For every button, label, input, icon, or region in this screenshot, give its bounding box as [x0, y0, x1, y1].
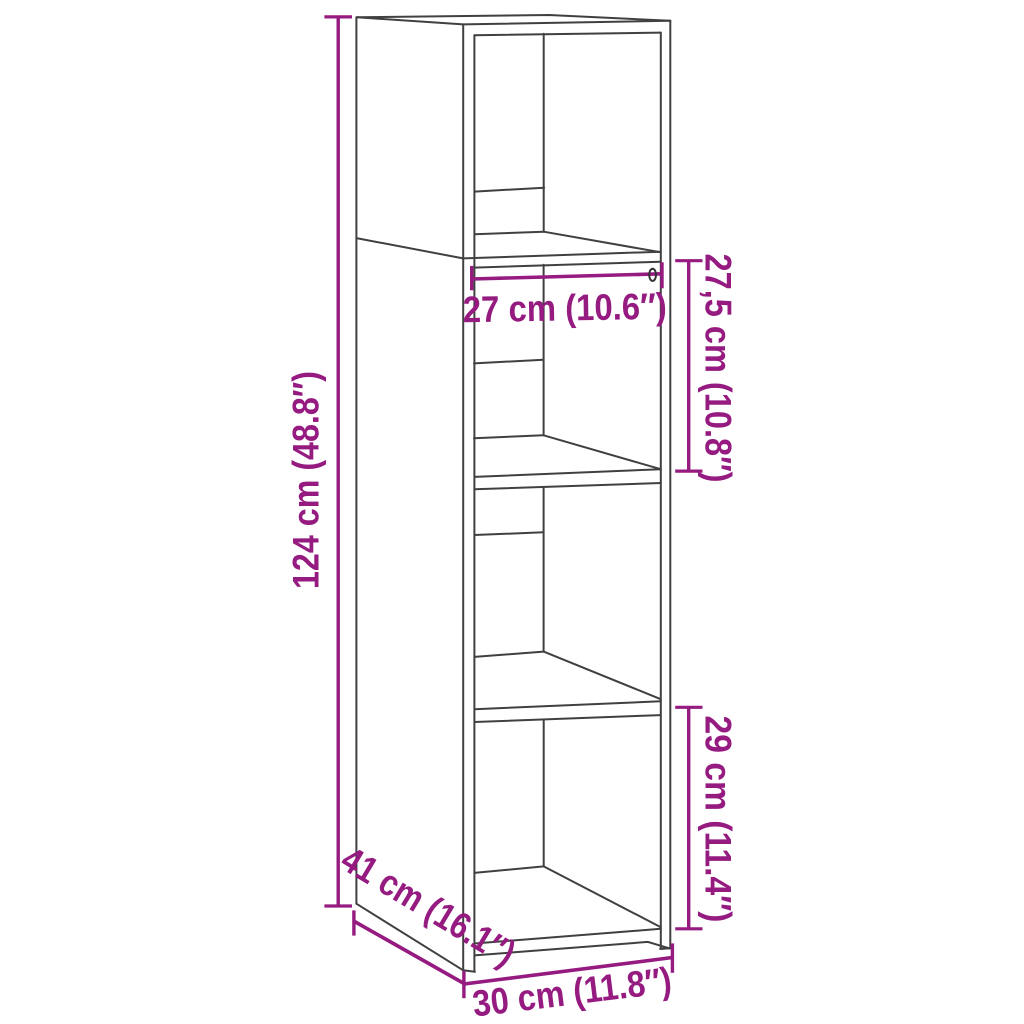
- svg-text:27 cm (10.6″): 27 cm (10.6″): [462, 286, 667, 331]
- svg-text:124 cm (48.8″): 124 cm (48.8″): [286, 371, 327, 589]
- svg-text:29 cm (11.4″): 29 cm (11.4″): [698, 716, 739, 923]
- svg-text:27,5 cm (10.8″): 27,5 cm (10.8″): [698, 254, 739, 483]
